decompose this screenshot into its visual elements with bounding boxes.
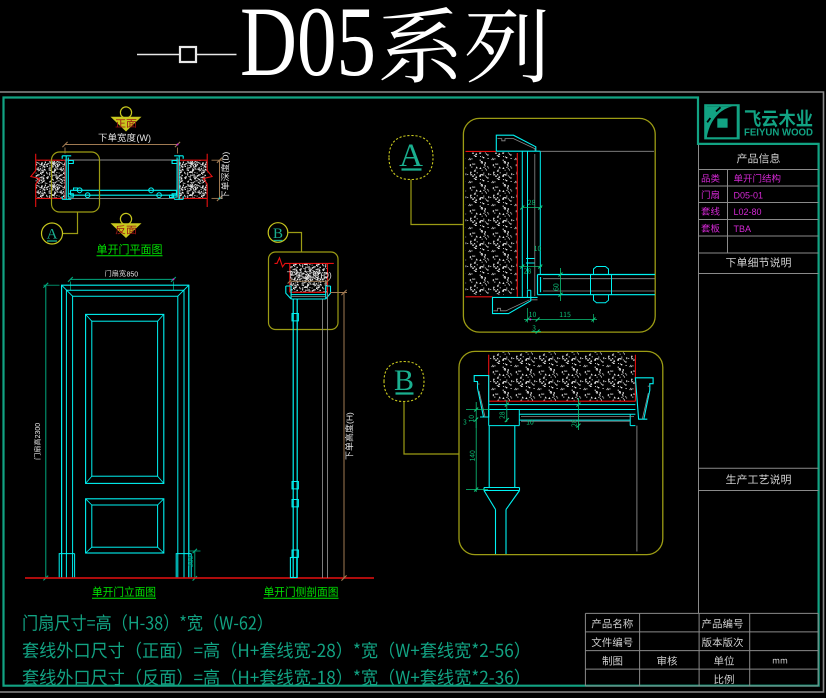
svg-text:D05: D05 <box>240 0 376 97</box>
svg-text:D05-01: D05-01 <box>734 190 764 200</box>
svg-text:L02-80: L02-80 <box>734 207 762 217</box>
svg-text:B: B <box>394 364 414 397</box>
svg-text:200: 200 <box>188 555 195 567</box>
svg-text:(H): (H) <box>345 412 355 424</box>
svg-text:TBA: TBA <box>734 224 752 234</box>
svg-text:FEIYUN WOOD: FEIYUN WOOD <box>744 127 813 139</box>
svg-text:(D): (D) <box>221 152 231 164</box>
svg-text:2300: 2300 <box>35 423 42 439</box>
svg-text:A: A <box>47 227 58 243</box>
svg-text:850: 850 <box>127 272 139 279</box>
svg-text:(D): (D) <box>321 271 332 280</box>
svg-text:(W): (W) <box>137 133 152 143</box>
svg-text:B: B <box>273 226 283 242</box>
